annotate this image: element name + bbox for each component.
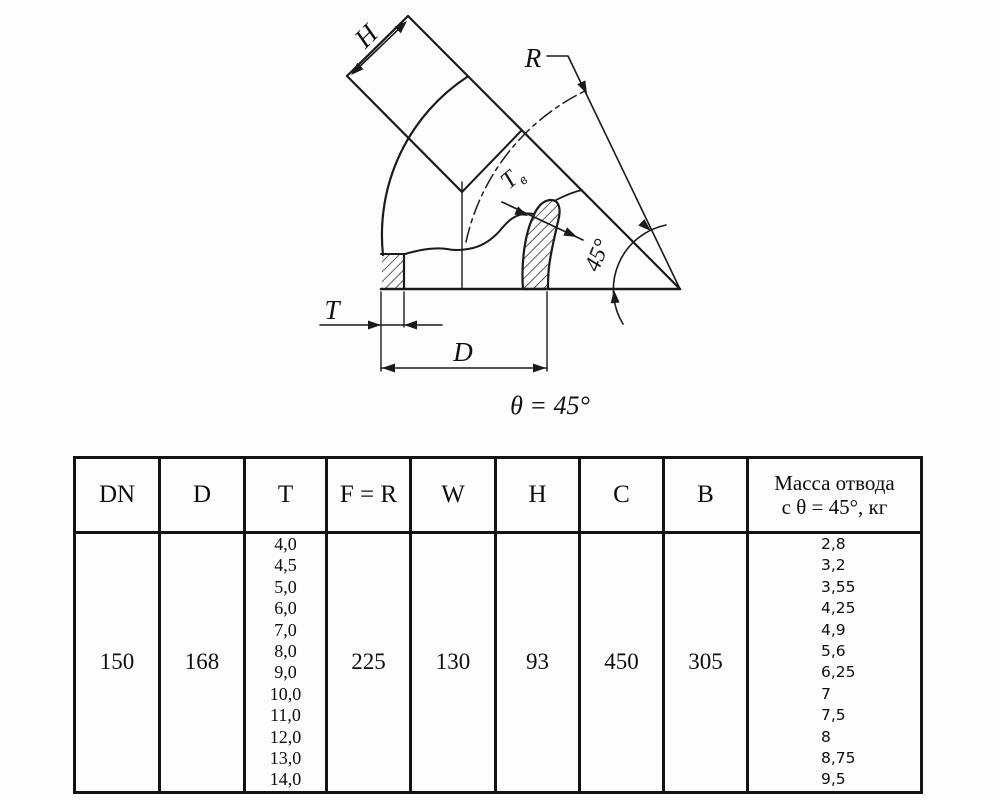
arrow-d-right bbox=[533, 364, 546, 373]
arrow-t-right bbox=[404, 321, 417, 330]
col-header-mass: Масса отвода с θ = 45°, кг bbox=[748, 458, 922, 533]
col-header-d: D bbox=[160, 458, 245, 533]
inner-surface-edge bbox=[556, 190, 582, 200]
label-d: D bbox=[452, 337, 473, 367]
arrow-tv-inner bbox=[563, 227, 579, 241]
arrow-d-left bbox=[382, 364, 395, 373]
table-cell-line: 14,0 bbox=[246, 769, 325, 790]
mass-header-line2: с θ = 45°, кг bbox=[749, 495, 920, 519]
table-cell-line: 4,9 bbox=[821, 620, 846, 641]
arrow-t-left bbox=[368, 321, 381, 330]
angle-arc bbox=[613, 225, 666, 324]
col-header-w: W bbox=[411, 458, 496, 533]
diagram-caption-theta: θ = 45° bbox=[510, 391, 590, 420]
wall-section-left-hatch bbox=[382, 255, 404, 289]
table-cell-line: 7,5 bbox=[821, 705, 846, 726]
arrow-radius bbox=[577, 80, 591, 96]
mass-values-stack: 2,83,23,554,254,95,66,2577,588,759,5 bbox=[749, 534, 920, 791]
table-cell-line: 4,5 bbox=[246, 555, 325, 576]
col-header-dn: DN bbox=[75, 458, 160, 533]
label-tv: Т в bbox=[496, 161, 532, 197]
table-cell-line: 9,0 bbox=[246, 662, 325, 683]
table-cell-line: 10,0 bbox=[246, 684, 325, 705]
table-cell-line: 8,0 bbox=[246, 641, 325, 662]
table-cell-line: 13,0 bbox=[246, 748, 325, 769]
cell-fr: 225 bbox=[327, 533, 411, 793]
table-cell-line: 9,5 bbox=[821, 769, 846, 790]
table-cell-line: 7,0 bbox=[246, 620, 325, 641]
elbow-outer-arc bbox=[382, 77, 467, 255]
table-cell-line: 4,0 bbox=[246, 534, 325, 555]
label-angle-45: 45° bbox=[579, 236, 614, 275]
elbow-diagram: H R Т в 45° T D θ = 45° bbox=[0, 0, 1000, 450]
table-cell-line: 12,0 bbox=[246, 727, 325, 748]
table-cell-line: 5,0 bbox=[246, 577, 325, 598]
col-header-c: C bbox=[580, 458, 664, 533]
table-cell-line: 6,0 bbox=[246, 598, 325, 619]
table-cell-line: 3,55 bbox=[821, 577, 856, 598]
col-header-fr: F = R bbox=[327, 458, 411, 533]
col-header-h: H bbox=[496, 458, 580, 533]
cell-dn: 150 bbox=[75, 533, 160, 793]
table-cell-line: 2,8 bbox=[821, 534, 846, 555]
cell-h: 93 bbox=[496, 533, 580, 793]
table-cell-line: 11,0 bbox=[246, 705, 325, 726]
dimensions-table: DN D T F = R W H C B Масса отвода с θ = … bbox=[73, 456, 923, 794]
header-row: DN D T F = R W H C B Масса отвода с θ = … bbox=[75, 458, 922, 533]
table-cell-line: 6,25 bbox=[821, 662, 856, 683]
cell-mass-values: 2,83,23,554,254,95,66,2577,588,759,5 bbox=[748, 533, 922, 793]
cell-d: 168 bbox=[160, 533, 245, 793]
page: H R Т в 45° T D θ = 45° DN D T F = R W H… bbox=[0, 0, 1000, 800]
elbow-break-line bbox=[381, 214, 534, 254]
cell-b: 305 bbox=[664, 533, 748, 793]
label-t: T bbox=[324, 295, 341, 325]
label-r: R bbox=[524, 43, 542, 73]
table-cell-line: 4,25 bbox=[821, 598, 856, 619]
arrowheads bbox=[348, 18, 654, 373]
cell-c: 450 bbox=[580, 533, 664, 793]
table-cell-line: 7 bbox=[821, 684, 831, 705]
table-cell-line: 3,2 bbox=[821, 555, 846, 576]
centerline-arc bbox=[466, 90, 587, 242]
table-cell-line: 5,6 bbox=[821, 641, 846, 662]
col-header-t: T bbox=[245, 458, 327, 533]
table-row: 150 168 4,04,55,06,07,08,09,010,011,012,… bbox=[75, 533, 922, 793]
mass-header-line1: Масса отвода bbox=[749, 471, 920, 495]
arrow-angle-bottom bbox=[610, 290, 620, 304]
table-cell-line: 8,75 bbox=[821, 748, 856, 769]
cell-t-values: 4,04,55,06,07,08,09,010,011,012,013,014,… bbox=[245, 533, 327, 793]
t-values-stack: 4,04,55,06,07,08,09,010,011,012,013,014,… bbox=[246, 534, 325, 791]
table-cell-line: 8 bbox=[821, 727, 831, 748]
radius-leader-line bbox=[547, 56, 680, 289]
cell-w: 130 bbox=[411, 533, 496, 793]
col-header-b: B bbox=[664, 458, 748, 533]
